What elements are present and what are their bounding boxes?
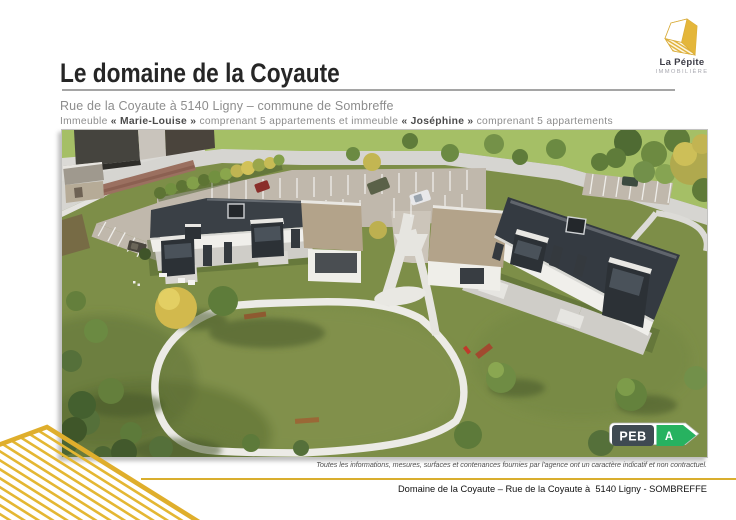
svg-text:A: A <box>665 431 673 443</box>
svg-text:PEB: PEB <box>619 430 646 444</box>
